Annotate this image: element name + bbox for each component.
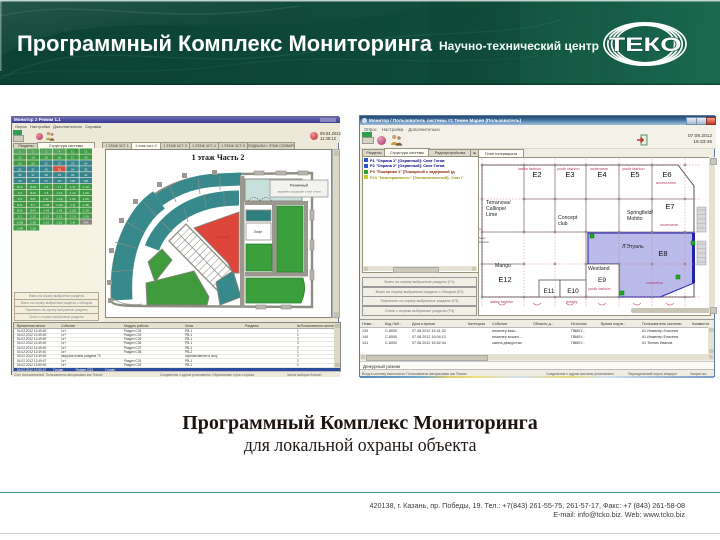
svg-text:E6: E6 bbox=[662, 170, 671, 179]
svg-text:Mango: Mango bbox=[495, 263, 511, 269]
svg-text:34: 34 bbox=[71, 167, 75, 171]
svg-text:43: 43 bbox=[31, 179, 35, 183]
svg-text:2.15: 2.15 bbox=[70, 215, 76, 219]
svg-text:ladies fashion: ladies fashion bbox=[518, 167, 541, 171]
svg-text:12: 12 bbox=[84, 150, 88, 154]
svg-text:1.5: 1.5 bbox=[44, 191, 49, 195]
svg-text:1.1: 1.1 bbox=[57, 185, 62, 189]
svg-text:22: 22 bbox=[58, 161, 62, 165]
svg-text:Б13: Б13 bbox=[17, 185, 23, 189]
svg-text:41: 41 bbox=[84, 173, 88, 177]
svg-text:Flashner: Flashner bbox=[479, 240, 489, 244]
svg-text:2.3Б: 2.3Б bbox=[30, 221, 36, 225]
svg-text:1.45: 1.45 bbox=[56, 209, 62, 213]
svg-text:19: 19 bbox=[18, 161, 22, 165]
svg-text:E5: E5 bbox=[630, 170, 639, 179]
svg-text:underwear: underwear bbox=[590, 167, 609, 171]
svg-text:35: 35 bbox=[58, 167, 62, 171]
svg-text:youth fashion: youth fashion bbox=[588, 287, 611, 291]
svg-text:underwear: underwear bbox=[660, 223, 679, 227]
svg-text:2.4В: 2.4В bbox=[17, 226, 23, 230]
svg-text:44: 44 bbox=[45, 179, 49, 183]
svg-text:Б.Б: Б.Б bbox=[17, 203, 22, 207]
svg-text:E8: E8 bbox=[658, 249, 667, 258]
svg-text:1.1Г: 1.1Г bbox=[43, 197, 49, 201]
svg-text:2.12: 2.12 bbox=[30, 215, 36, 219]
svg-text:31: 31 bbox=[31, 167, 35, 171]
svg-text:News: News bbox=[479, 236, 486, 240]
svg-text:Mohito: Mohito bbox=[627, 216, 643, 222]
svg-text:club: club bbox=[558, 221, 568, 227]
svg-text:45: 45 bbox=[58, 179, 62, 183]
svg-text:E2: E2 bbox=[532, 170, 541, 179]
svg-text:1 этаж Часть 2: 1 этаж Часть 2 bbox=[192, 153, 245, 162]
svg-text:1.4Б: 1.4Б bbox=[83, 203, 89, 207]
svg-text:1.1М: 1.1М bbox=[56, 203, 63, 207]
svg-text:1.5: 1.5 bbox=[44, 185, 49, 189]
svg-text:39: 39 bbox=[58, 173, 62, 177]
svg-text:1.1В: 1.1В bbox=[43, 203, 49, 207]
svg-text:2.1: 2.1 bbox=[18, 215, 23, 219]
svg-text:1.25: 1.25 bbox=[83, 197, 89, 201]
svg-text:Б42: Б42 bbox=[17, 209, 23, 213]
svg-text:Б.М: Б.М bbox=[30, 191, 36, 195]
svg-text:37: 37 bbox=[31, 173, 35, 177]
svg-text:E11: E11 bbox=[543, 288, 554, 295]
svg-text:Б19: Б19 bbox=[30, 185, 36, 189]
svg-text:E9: E9 bbox=[598, 277, 606, 284]
svg-text:1.4]: 1.4] bbox=[70, 203, 75, 207]
svg-text:1.1Г: 1.1Г bbox=[70, 185, 76, 189]
svg-text:1.1А: 1.1А bbox=[83, 185, 89, 189]
svg-text:cosmetics: cosmetics bbox=[646, 281, 663, 285]
svg-text:15: 15 bbox=[45, 156, 49, 160]
svg-text:задержка продукции с зам. тепл: задержка продукции с зам. тепла bbox=[277, 190, 321, 194]
svg-text:2.1Б: 2.1Б bbox=[56, 221, 62, 225]
svg-text:youth fashion: youth fashion bbox=[622, 167, 645, 171]
svg-text:2.3В: 2.3В bbox=[17, 221, 23, 225]
svg-text:Б.7: Б.7 bbox=[31, 203, 36, 207]
svg-text:38: 38 bbox=[45, 173, 49, 177]
svg-text:17: 17 bbox=[71, 156, 75, 160]
svg-text:1.12: 1.12 bbox=[56, 191, 62, 195]
svg-text:2.4]: 2.4] bbox=[70, 221, 75, 225]
svg-text:36: 36 bbox=[18, 173, 22, 177]
svg-text:Лифт: Лифт bbox=[254, 230, 263, 234]
svg-text:16: 16 bbox=[58, 156, 62, 160]
svg-text:11Б: 11Б bbox=[70, 179, 75, 183]
svg-text:1.2А: 1.2А bbox=[83, 191, 89, 195]
svg-text:40: 40 bbox=[71, 173, 75, 177]
svg-text:Б43: Б43 bbox=[30, 209, 36, 213]
svg-text:1.14: 1.14 bbox=[70, 191, 76, 195]
svg-text:Л'Этуаль: Л'Этуаль bbox=[622, 244, 644, 250]
svg-text:Б.Б: Б.Б bbox=[31, 197, 36, 201]
svg-text:11Б: 11Б bbox=[83, 179, 88, 183]
svg-text:1.3А: 1.3А bbox=[70, 197, 76, 201]
svg-text:Westland: Westland bbox=[588, 266, 610, 272]
svg-text:13: 13 bbox=[18, 156, 22, 160]
svg-text:Розничный: Розничный bbox=[290, 184, 308, 188]
svg-text:2.19: 2.19 bbox=[43, 221, 49, 225]
svg-text:24Б: 24Б bbox=[83, 221, 88, 225]
svg-text:E12: E12 bbox=[498, 275, 511, 284]
svg-text:Lime: Lime bbox=[486, 212, 497, 218]
svg-text:jewelry: jewelry bbox=[565, 300, 578, 304]
svg-text:11: 11 bbox=[71, 150, 74, 154]
svg-text:2.1В: 2.1В bbox=[70, 209, 76, 213]
svg-text:2.15: 2.15 bbox=[56, 215, 62, 219]
svg-text:E3: E3 bbox=[565, 170, 574, 179]
svg-text:youth fashion: youth fashion bbox=[557, 167, 580, 171]
svg-text:18: 18 bbox=[84, 156, 88, 160]
svg-text:ТЕКО: ТЕКО bbox=[609, 35, 682, 56]
svg-text:ladies fashion: ladies fashion bbox=[490, 300, 513, 304]
svg-text:42: 42 bbox=[18, 179, 22, 183]
svg-text:E4: E4 bbox=[597, 170, 606, 179]
svg-text:accessories: accessories bbox=[656, 181, 676, 185]
svg-text:21: 21 bbox=[45, 161, 49, 165]
svg-text:E7: E7 bbox=[665, 202, 674, 211]
svg-text:35: 35 bbox=[84, 167, 88, 171]
svg-text:2.1А: 2.1А bbox=[83, 209, 89, 213]
svg-text:1.1Д: 1.1Д bbox=[56, 197, 62, 201]
svg-text:20: 20 bbox=[31, 161, 35, 165]
svg-text:2.13: 2.13 bbox=[43, 215, 49, 219]
svg-text:E10: E10 bbox=[567, 288, 579, 295]
svg-text:23: 23 bbox=[71, 161, 75, 165]
svg-text:24: 24 bbox=[84, 161, 88, 165]
svg-text:0.5: 0.5 bbox=[18, 197, 23, 201]
svg-text:2.50: 2.50 bbox=[30, 226, 36, 230]
svg-text:14: 14 bbox=[31, 156, 35, 160]
svg-text:25: 25 bbox=[18, 167, 22, 171]
svg-text:2.2А: 2.2А bbox=[83, 215, 89, 219]
svg-text:Торговый: Торговый bbox=[216, 235, 229, 239]
svg-text:1.9: 1.9 bbox=[18, 191, 23, 195]
svg-text:30: 30 bbox=[45, 167, 49, 171]
svg-text:1.44: 1.44 bbox=[43, 209, 49, 213]
